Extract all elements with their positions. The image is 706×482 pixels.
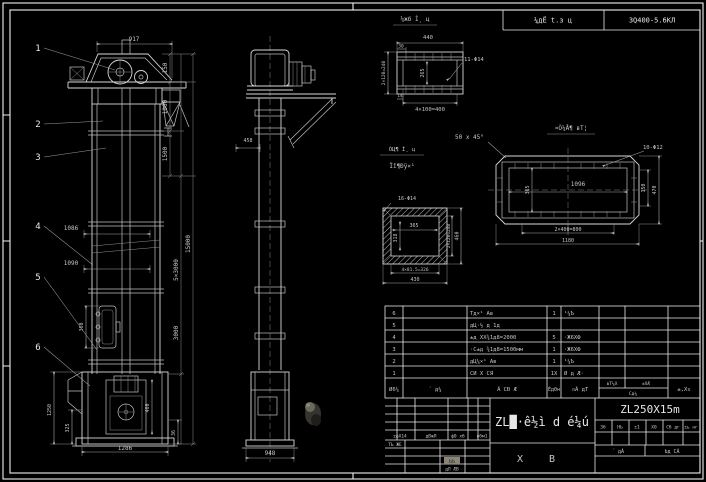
balloon-6: 6	[35, 343, 40, 353]
bom-row-no: 4	[392, 335, 396, 341]
dim-boot-36: 36	[171, 430, 177, 436]
dim-30: 30	[398, 44, 404, 50]
bom-header-remark: ±,Х¤	[677, 387, 690, 393]
balloon-1: 1	[35, 44, 40, 54]
dim-sq-right-inner: 2×120=240	[446, 224, 452, 249]
dim-sq-460: 460	[455, 231, 461, 240]
bom-row-name: Тд×¹ Ав	[470, 310, 493, 317]
bom-table: 6 Тд×¹ Ав 1 ¹¼Ъ 5 дЦ·½ д 1д 4 ±д ХХ¾1д8=…	[385, 306, 700, 398]
detail-top-holes: 11-Φ14	[464, 57, 485, 63]
signature-label-2: дЛ ÆВ	[445, 467, 459, 473]
dim-seg-1500: 1500	[162, 146, 169, 161]
bom-row-no: 6	[392, 311, 395, 317]
bom-row-material: ¹¼Ъ	[564, 358, 575, 365]
side-view: 458 948	[236, 36, 336, 462]
bom-row-qty: 5	[552, 335, 555, 341]
dim-365: 365	[525, 185, 531, 194]
bom-header-code: ´ д¼	[428, 387, 441, 393]
bom-row-name: дЦ·½ д 1д	[470, 322, 500, 329]
detail-top-flange: ¼жб Ì¸ ц 440 30 2×120=240 265 14 4×100=4…	[381, 16, 485, 113]
detail-square-holes: 16-Φ14	[398, 196, 416, 202]
rev-label-1: ±фХ14	[393, 434, 407, 440]
bom-row-qty: 1	[552, 347, 555, 353]
cad-drawing: ¼дЁ t.з ц 3Q400-5.6KЛ	[0, 0, 706, 482]
rev-label-4: вбм1	[477, 433, 488, 440]
dim-door-height: 360	[79, 322, 85, 331]
header-process-cell: ¼дЁ t.з ц	[534, 16, 572, 25]
bom-header-weight2: ±ХÆ	[642, 381, 650, 387]
bom-header-weight1: вТ¼Х	[607, 381, 618, 387]
header-band: ¼дЁ t.з ц 3Q400-5.6KЛ	[503, 10, 700, 30]
dim-seg-1000: 1000	[162, 99, 169, 114]
mini-header-6: ±ь нг	[684, 426, 698, 431]
dim-sq-318: 318	[393, 233, 399, 242]
bom-row-name: СИ Х СЯ	[470, 371, 494, 377]
dim-top-width: 917	[129, 36, 140, 43]
bom-row-material: ¹¼Ъ	[564, 310, 575, 317]
rev-label-2: дВжЛ	[426, 434, 437, 440]
detail-square-flange: ÓЦ¶ Ì¸ ц Ïî¶Ðÿ×¹ 16-Φ14 365 318 2×120=24…	[380, 146, 463, 285]
drawing-number: ZL250X15m	[620, 403, 680, 416]
detail-right-holes: 10-Φ12	[643, 145, 663, 151]
chamfer-note: 50 x 45°	[455, 134, 484, 141]
dim-14: 14	[397, 93, 403, 99]
bom-row-qty: 1Х	[551, 371, 558, 377]
title-block: ±фХ14 дВжЛ ф0 хб вбм1 ТЬ ЖЕ ЬЬ дЛ ÆВ ZL█…	[385, 398, 700, 473]
bom-header-qty: Éд0н	[548, 385, 560, 393]
sheet-no-label: Ьд СÁ	[664, 448, 679, 455]
bom-row-no: 2	[392, 359, 395, 365]
dim-1096: 1096	[571, 181, 586, 188]
bom-row-qty: 1	[552, 359, 555, 365]
dim-470: 470	[652, 185, 658, 194]
signature-label-1: ТЬ ЖЕ	[388, 442, 402, 448]
balloon-2: 2	[35, 120, 40, 130]
dim-boot-325: 325	[65, 423, 71, 432]
sheet-type-char2: В	[549, 454, 555, 465]
dim-sq-bottom2: 430	[410, 277, 419, 283]
detail-right-title: ¤Ò¼Å¶ вТ¦	[555, 125, 588, 132]
dim-265: 265	[420, 68, 426, 77]
bom-header-weight-bottom: Сд¼	[629, 391, 637, 397]
dim-2x400: 2×400=800	[554, 227, 581, 233]
balloon-callouts: 1 2 3 4 5 6	[35, 44, 115, 386]
dim-side-948: 948	[265, 450, 276, 457]
dim-sq-bottom1: 4×81.5=326	[401, 267, 428, 273]
product-title: ZL█·ê½ì d é¼ú	[495, 414, 589, 429]
mini-header-2: НЬ	[617, 425, 623, 431]
dim-440: 440	[423, 35, 433, 41]
mini-header-4: Х0	[651, 425, 657, 431]
detail-square-title1: ÓЦ¶ Ì¸ ц	[389, 146, 416, 153]
bom-header-name: Ã СÐ Æ	[497, 386, 518, 393]
dim-len-1086: 1086	[64, 225, 79, 232]
mini-header-5: Сб дг	[666, 424, 680, 431]
bom-header-material: ¤Ã дТ	[572, 386, 589, 393]
detail-top-title: ¼жб Ì¸ ц	[401, 16, 430, 23]
bom-row-qty: 1	[552, 311, 555, 317]
dim-side-458: 458	[243, 138, 252, 144]
dim-2x120: 2×120=240	[381, 61, 387, 86]
dim-boot-width: 1286	[118, 445, 133, 452]
selected-text: ЬЬ	[449, 459, 455, 465]
dim-seg-150: 150	[162, 62, 169, 73]
bom-header-no: Ø6¼	[389, 386, 399, 393]
dim-total-height: 15000	[185, 235, 192, 253]
mini-header-3: ±1	[634, 425, 640, 431]
balloon-4: 4	[35, 222, 40, 232]
bom-row-material: Ø д Æ·	[564, 370, 584, 377]
dim-4x100: 4×100=400	[415, 107, 445, 113]
bom-row-material: ·Ж6ХФ	[564, 335, 581, 341]
detail-square-title2: Ïî¶Ðÿ×¹	[389, 163, 414, 170]
front-view	[68, 40, 189, 446]
sheet-type-char1: Х	[517, 454, 523, 465]
detail-right-flange: ¤Ò¼Å¶ вТ¦ 50 x 45° 10-Φ12 1096 365 150 4…	[455, 125, 663, 246]
mini-header-1: 3б	[600, 424, 606, 431]
sheet-total-label: ´ дÁ	[612, 448, 624, 455]
bom-row-no: 3	[392, 347, 395, 353]
dim-sq-365: 365	[409, 223, 418, 229]
header-spec-cell: 3Q400-5.6KЛ	[629, 17, 675, 25]
bom-row-material: ·Ж6ХФ	[564, 347, 581, 353]
bom-row-name: ·С±д ¾1д8=1500мм	[470, 347, 524, 353]
bom-row-name: ±д ХХ¾1д8=2000	[470, 335, 516, 341]
cad-drawing-canvas: ¼дЁ t.з ц 3Q400-5.6KЛ	[0, 0, 706, 482]
dim-seg-3000: 3000	[173, 325, 180, 340]
bom-row-no: 5	[392, 323, 395, 329]
balloon-5: 5	[35, 273, 40, 283]
dim-seg-5x3000: 5×3000	[173, 259, 180, 281]
bom-row-name: дЦ¼×¹ Ав	[470, 358, 497, 365]
balloon-3: 3	[35, 153, 40, 163]
dim-150: 150	[641, 183, 647, 192]
dim-1180: 1180	[562, 238, 574, 244]
cursor-artifact	[305, 402, 321, 426]
dim-boot-460: 460	[145, 403, 151, 412]
dim-boot-height: 1250	[47, 404, 53, 416]
bom-row-no: 1	[392, 371, 395, 377]
dim-len-1090: 1090	[64, 260, 79, 267]
rev-label-3: ф0 хб	[451, 433, 465, 440]
